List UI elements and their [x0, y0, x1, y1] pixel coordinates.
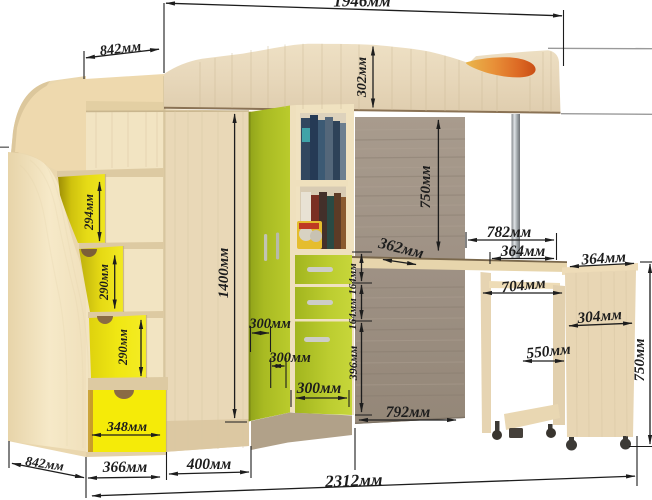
svg-text:300мм: 300мм	[296, 380, 342, 397]
svg-text:364мм: 364мм	[500, 243, 546, 260]
svg-text:294мм: 294мм	[82, 194, 96, 231]
svg-text:750мм: 750мм	[632, 338, 648, 381]
svg-text:792мм: 792мм	[386, 404, 431, 421]
svg-text:348мм: 348мм	[106, 420, 148, 435]
svg-text:400мм: 400мм	[186, 456, 232, 473]
svg-text:364мм: 364мм	[580, 248, 627, 268]
svg-text:290мм: 290мм	[97, 264, 111, 301]
svg-text:300мм: 300мм	[268, 350, 311, 366]
svg-text:750мм: 750мм	[418, 165, 434, 208]
svg-text:396мм: 396мм	[346, 346, 360, 381]
svg-text:2312мм: 2312мм	[324, 470, 383, 491]
svg-text:366мм: 366мм	[102, 459, 148, 476]
svg-text:300мм: 300мм	[248, 316, 291, 332]
svg-text:164мм: 164мм	[347, 298, 359, 330]
svg-text:782мм: 782мм	[487, 224, 532, 241]
svg-text:1400мм: 1400мм	[216, 248, 232, 299]
svg-text:164мм: 164мм	[347, 263, 359, 295]
svg-text:302мм: 302мм	[355, 57, 370, 99]
svg-text:290мм: 290мм	[116, 329, 130, 366]
svg-text:1946мм: 1946мм	[333, 0, 391, 11]
